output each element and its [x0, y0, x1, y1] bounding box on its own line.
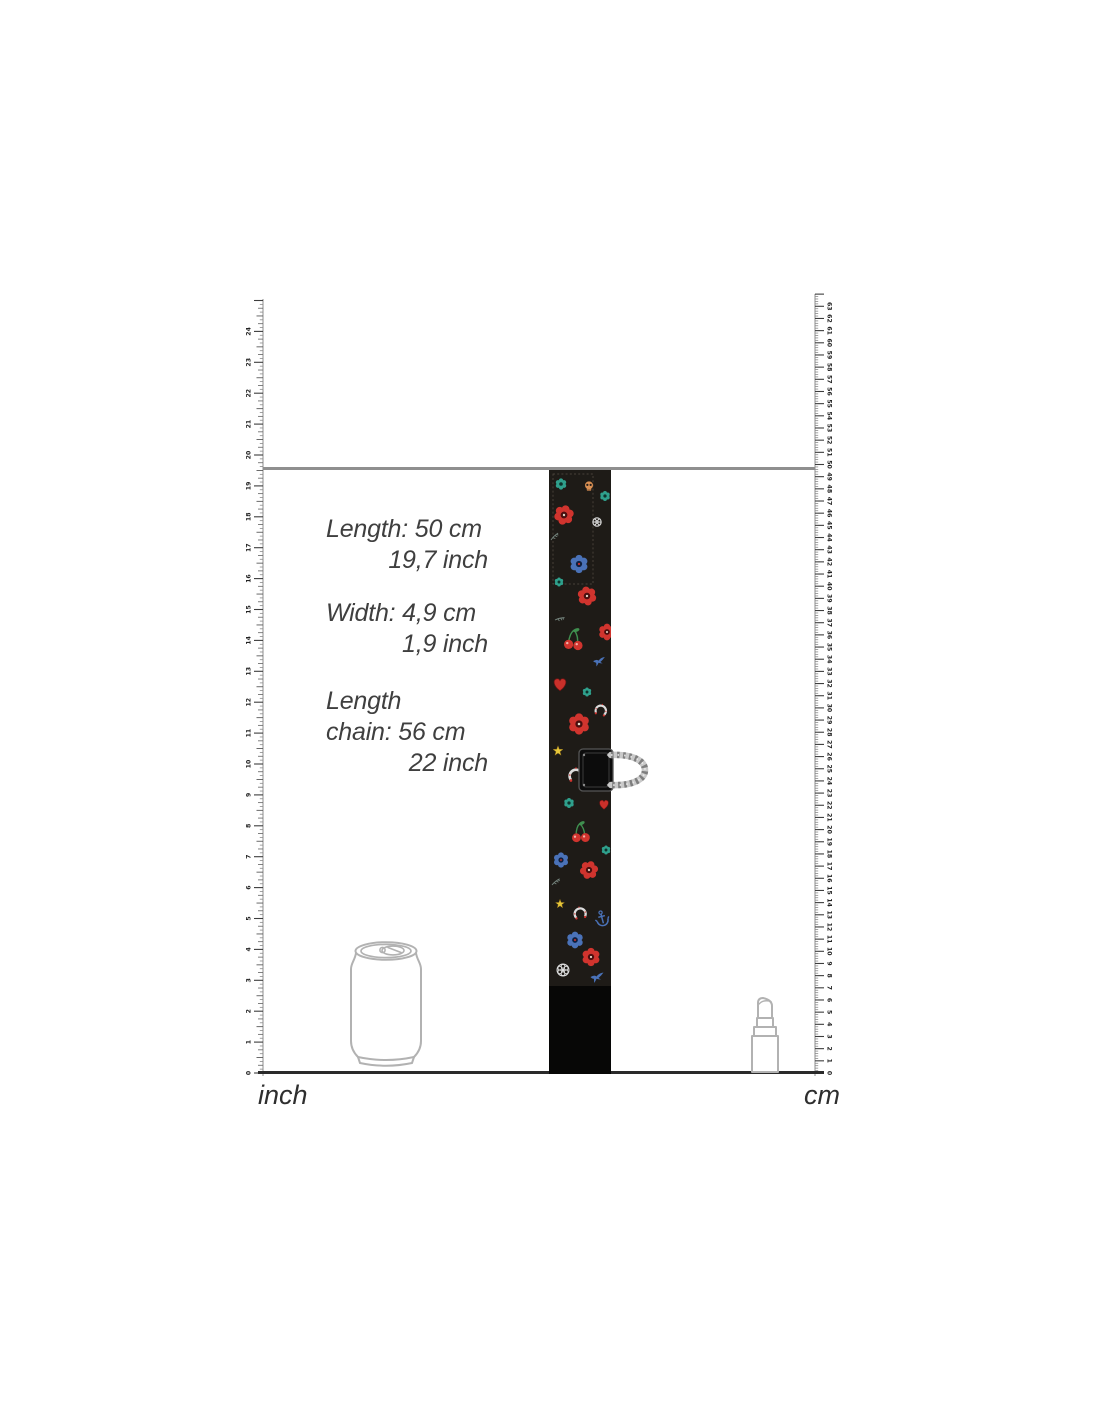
ruler-number: 61	[826, 326, 833, 335]
ruler-number: 48	[826, 485, 833, 494]
ruler-number: 3	[246, 978, 253, 982]
strap-drawing	[549, 470, 659, 1074]
ruler-number: 5	[246, 916, 253, 920]
ruler-number: 17	[826, 862, 833, 871]
ruler-number: 53	[826, 424, 833, 433]
ruler-number: 45	[826, 521, 833, 530]
ruler-number: 22	[246, 389, 253, 398]
ruler-number: 55	[826, 399, 833, 408]
spec-chain-word: Length	[326, 686, 488, 717]
spec-width: Width: 4,9 cm 1,9 inch	[326, 598, 488, 660]
ruler-number: 40	[826, 582, 833, 591]
ruler-number: 18	[246, 512, 253, 521]
ruler-number: 1	[826, 1059, 833, 1063]
cm-label: cm	[804, 1080, 840, 1110]
ruler-number: 22	[826, 801, 833, 810]
ruler-number: 60	[826, 338, 833, 347]
d-ring	[579, 749, 645, 791]
cm-ruler: 0123456789101112131415161718192021222324…	[815, 294, 833, 1076]
lipstick-icon	[742, 996, 788, 1074]
ruler-number: 6	[246, 885, 253, 889]
ruler-number: 16	[826, 874, 833, 883]
ruler-number: 23	[246, 358, 253, 367]
ruler-number: 50	[826, 460, 833, 469]
ruler-number: 14	[246, 635, 253, 644]
ruler-number: 3	[826, 1034, 833, 1038]
ruler-number: 36	[826, 631, 833, 640]
spec-chain-cm: chain: 56 cm	[326, 717, 488, 748]
ruler-number: 29	[826, 716, 833, 725]
ruler-number: 31	[826, 691, 833, 700]
ruler-number: 12	[246, 698, 253, 707]
ruler-number: 16	[246, 574, 253, 583]
ruler-number: 11	[246, 729, 253, 738]
ruler-number: 13	[826, 910, 833, 919]
ruler-number: 63	[826, 302, 833, 311]
ground-baseline	[258, 1071, 824, 1074]
ruler-number: 62	[826, 314, 833, 323]
ruler-number: 15	[246, 605, 253, 614]
ruler-number: 59	[826, 351, 833, 360]
ruler-number: 6	[826, 998, 833, 1002]
spec-width-cm: Width: 4,9 cm	[326, 598, 488, 629]
ruler-number: 35	[826, 643, 833, 652]
ruler-number: 41	[826, 570, 833, 579]
ruler-number: 4	[246, 947, 253, 952]
ruler-number: 58	[826, 363, 833, 372]
ruler-number: 12	[826, 923, 833, 932]
ruler-number: 44	[826, 533, 833, 542]
ruler-number: 8	[246, 824, 253, 828]
ruler-number: 21	[246, 420, 253, 429]
spec-length: Length: 50 cm 19,7 inch	[326, 514, 488, 576]
ruler-number: 10	[246, 759, 253, 768]
ruler-number: 43	[826, 545, 833, 554]
ruler-number: 24	[246, 326, 253, 335]
ruler-number: 54	[826, 412, 833, 421]
inch-ruler: 0123456789101112131415161718192021222324	[246, 299, 264, 1076]
ruler-number: 1	[246, 1040, 253, 1044]
ruler-number: 25	[826, 764, 833, 773]
spec-chain-inch: 22 inch	[326, 748, 488, 779]
ruler-number: 20	[826, 825, 833, 834]
ruler-number: 2	[246, 1009, 253, 1013]
ruler-number: 10	[826, 947, 833, 956]
spec-length-inch: 19,7 inch	[326, 545, 488, 576]
spec-length-cm: Length: 50 cm	[326, 514, 488, 545]
ruler-number: 51	[826, 448, 833, 457]
ruler-number: 7	[246, 855, 253, 859]
ruler-number: 11	[826, 935, 833, 944]
ruler-number: 2	[826, 1047, 833, 1051]
ruler-number: 24	[826, 777, 833, 786]
ruler-number: 14	[826, 898, 833, 907]
ruler-number: 42	[826, 558, 833, 567]
ruler-number: 19	[246, 482, 253, 491]
ruler-number: 9	[826, 961, 833, 965]
ruler-number: 52	[826, 436, 833, 445]
ruler-number: 32	[826, 679, 833, 688]
ruler-number: 56	[826, 387, 833, 396]
ruler-number: 26	[826, 752, 833, 761]
ruler-number: 49	[826, 472, 833, 481]
ruler-number: 8	[826, 973, 833, 977]
product-dimension-diagram: 0123456789101112131415161718192021222324…	[0, 0, 1100, 1422]
ruler-number: 33	[826, 667, 833, 676]
ruler-number: 37	[826, 618, 833, 627]
ruler-number: 18	[826, 850, 833, 859]
inch-label: inch	[258, 1080, 308, 1110]
spec-chain-length: Length chain: 56 cm 22 inch	[326, 686, 488, 779]
soda-can-icon	[344, 936, 428, 1075]
ruler-number: 17	[246, 543, 253, 552]
product-top-reference-line	[263, 467, 815, 470]
ruler-number: 47	[826, 497, 833, 506]
strap-black-section	[549, 986, 611, 1074]
ruler-number: 0	[246, 1070, 253, 1075]
ruler-number: 13	[246, 667, 253, 676]
ruler-number: 27	[826, 740, 833, 749]
ruler-number: 19	[826, 837, 833, 846]
ruler-number: 4	[826, 1022, 833, 1027]
ruler-number: 15	[826, 886, 833, 895]
ruler-number: 34	[826, 655, 833, 664]
ruler-number: 0	[826, 1071, 833, 1076]
ruler-number: 23	[826, 789, 833, 798]
ruler-number: 57	[826, 375, 833, 384]
ruler-number: 9	[246, 793, 253, 797]
ruler-number: 30	[826, 704, 833, 713]
ruler-number: 46	[826, 509, 833, 518]
ruler-number: 21	[826, 813, 833, 822]
ruler-number: 39	[826, 594, 833, 603]
ruler-number: 28	[826, 728, 833, 737]
ruler-number: 38	[826, 606, 833, 615]
ruler-number: 5	[826, 1010, 833, 1014]
ruler-number: 20	[246, 450, 253, 459]
spec-width-inch: 1,9 inch	[326, 629, 488, 660]
ruler-number: 7	[826, 986, 833, 990]
